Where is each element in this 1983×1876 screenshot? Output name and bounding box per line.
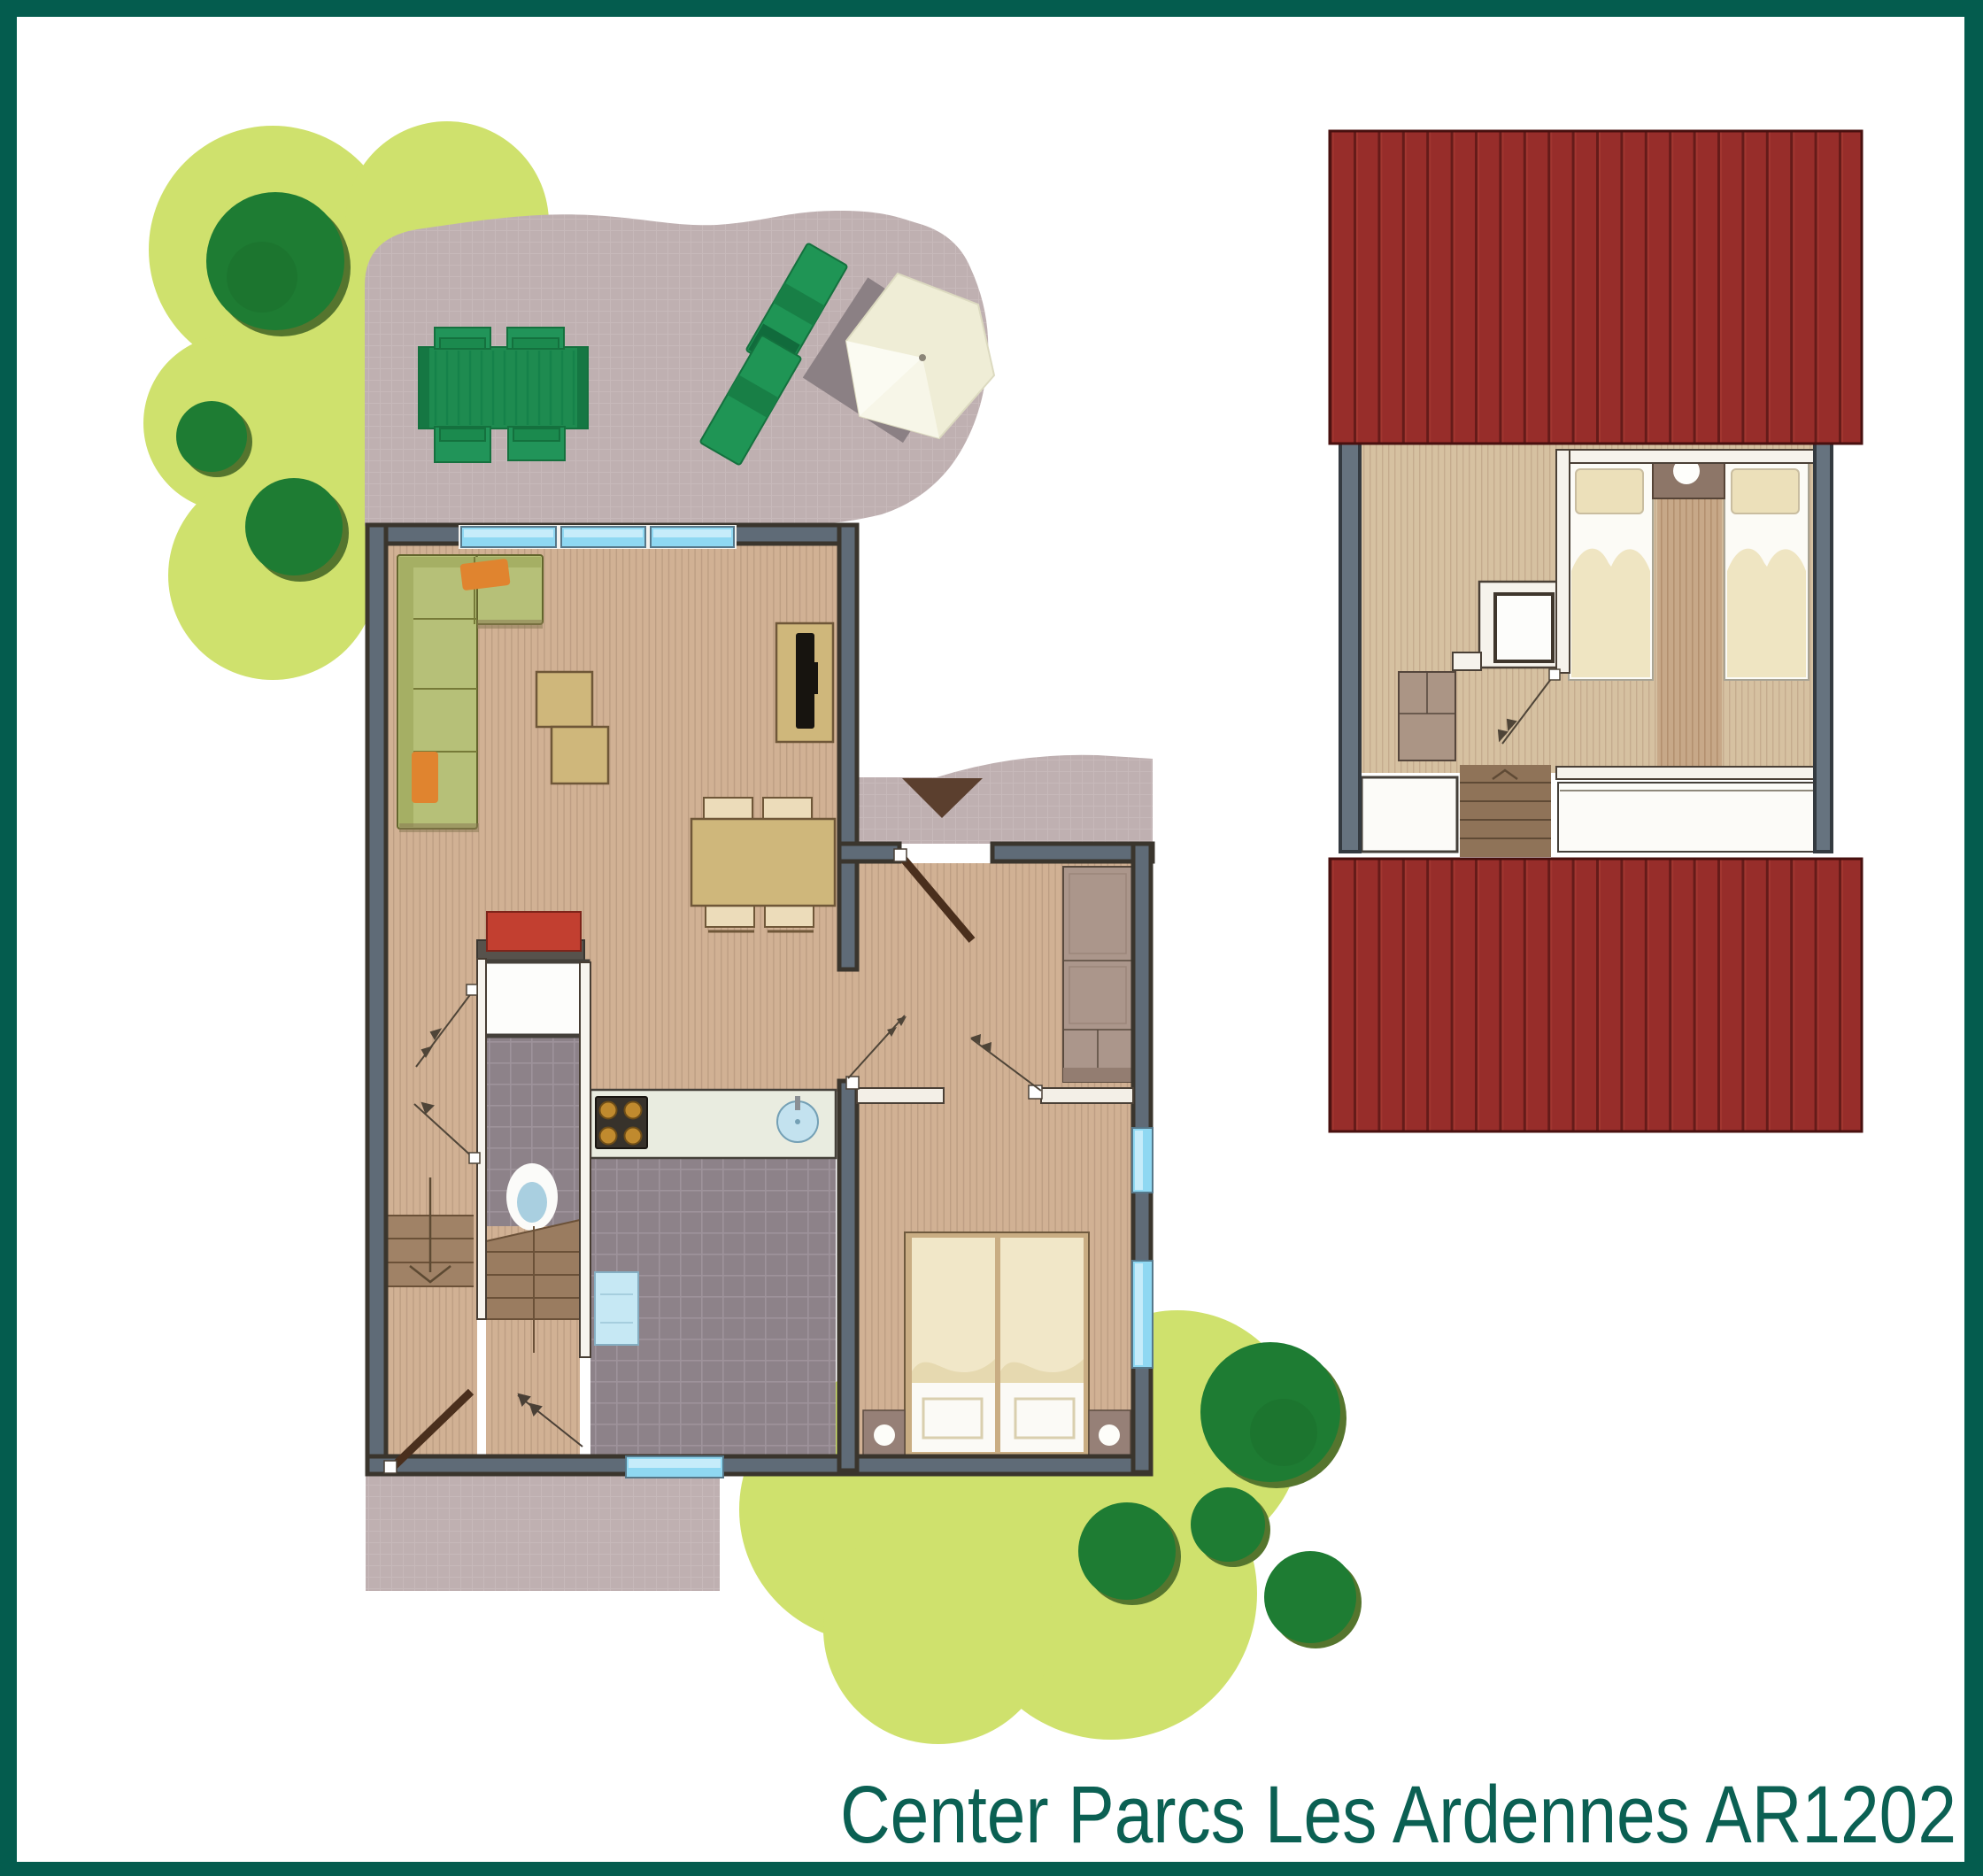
svg-text:Center Parcs Les Ardennes AR12: Center Parcs Les Ardennes AR1202 [840,1770,1956,1860]
